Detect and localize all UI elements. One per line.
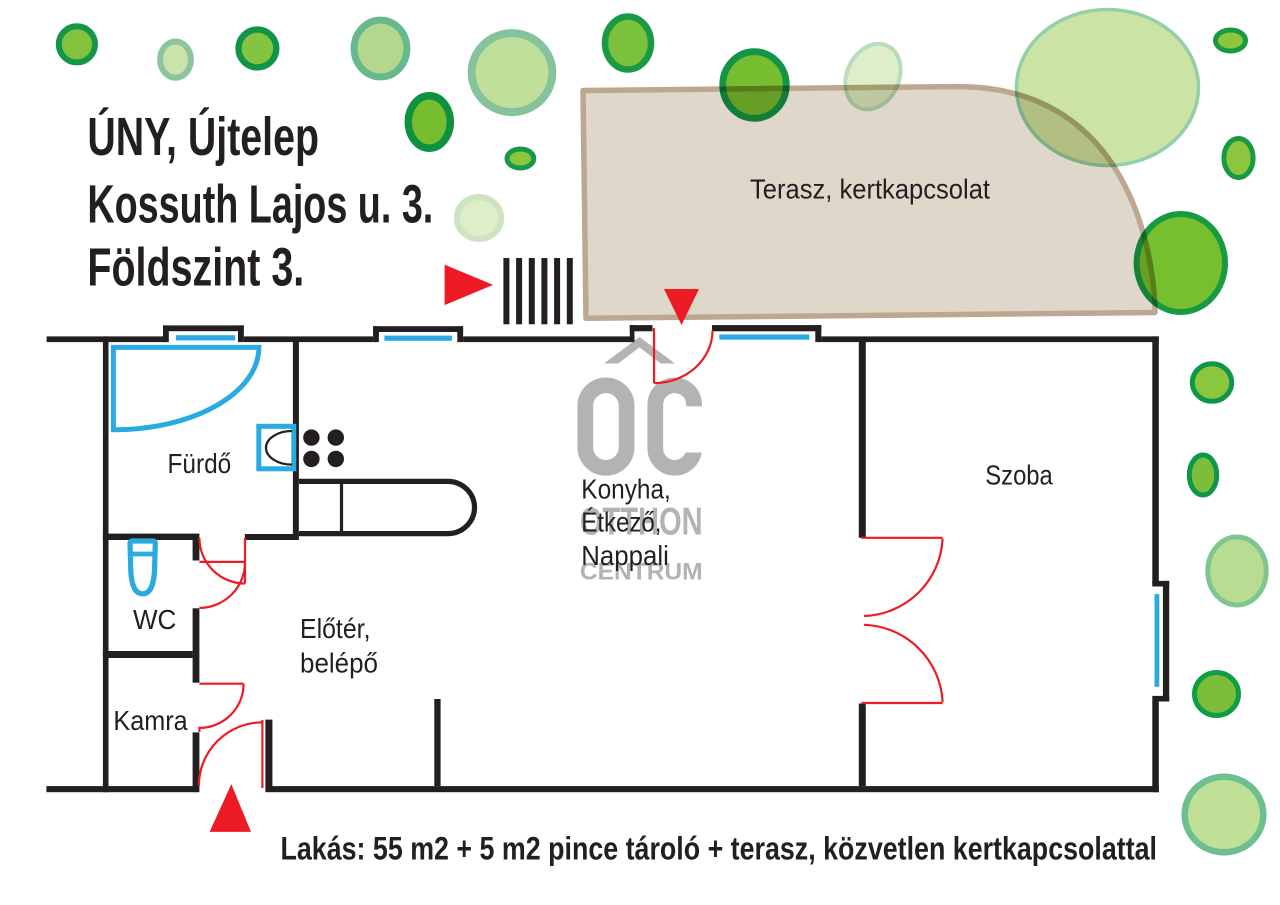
svg-text:Nappali: Nappali [581, 540, 669, 571]
svg-text:Szoba: Szoba [985, 460, 1053, 491]
svg-text:Földszint 3.: Földszint 3. [87, 238, 304, 298]
svg-text:Kossuth Lajos u. 3.: Kossuth Lajos u. 3. [87, 174, 433, 234]
svg-text:Étkező,: Étkező, [581, 507, 661, 538]
svg-text:WC: WC [133, 604, 176, 635]
svg-text:Terasz, kertkapcsolat: Terasz, kertkapcsolat [750, 174, 990, 205]
svg-text:belépő: belépő [300, 648, 378, 679]
svg-text:Konyha,: Konyha, [581, 474, 671, 505]
svg-text:Kamra: Kamra [113, 705, 188, 736]
svg-text:ÚNY, Újtelep: ÚNY, Újtelep [87, 107, 319, 167]
svg-text:Fürdő: Fürdő [168, 448, 232, 479]
svg-text:Előtér,: Előtér, [300, 613, 371, 644]
svg-text:Lakás: 55 m2 + 5 m2 pince táro: Lakás: 55 m2 + 5 m2 pince tároló + teras… [281, 831, 1158, 867]
